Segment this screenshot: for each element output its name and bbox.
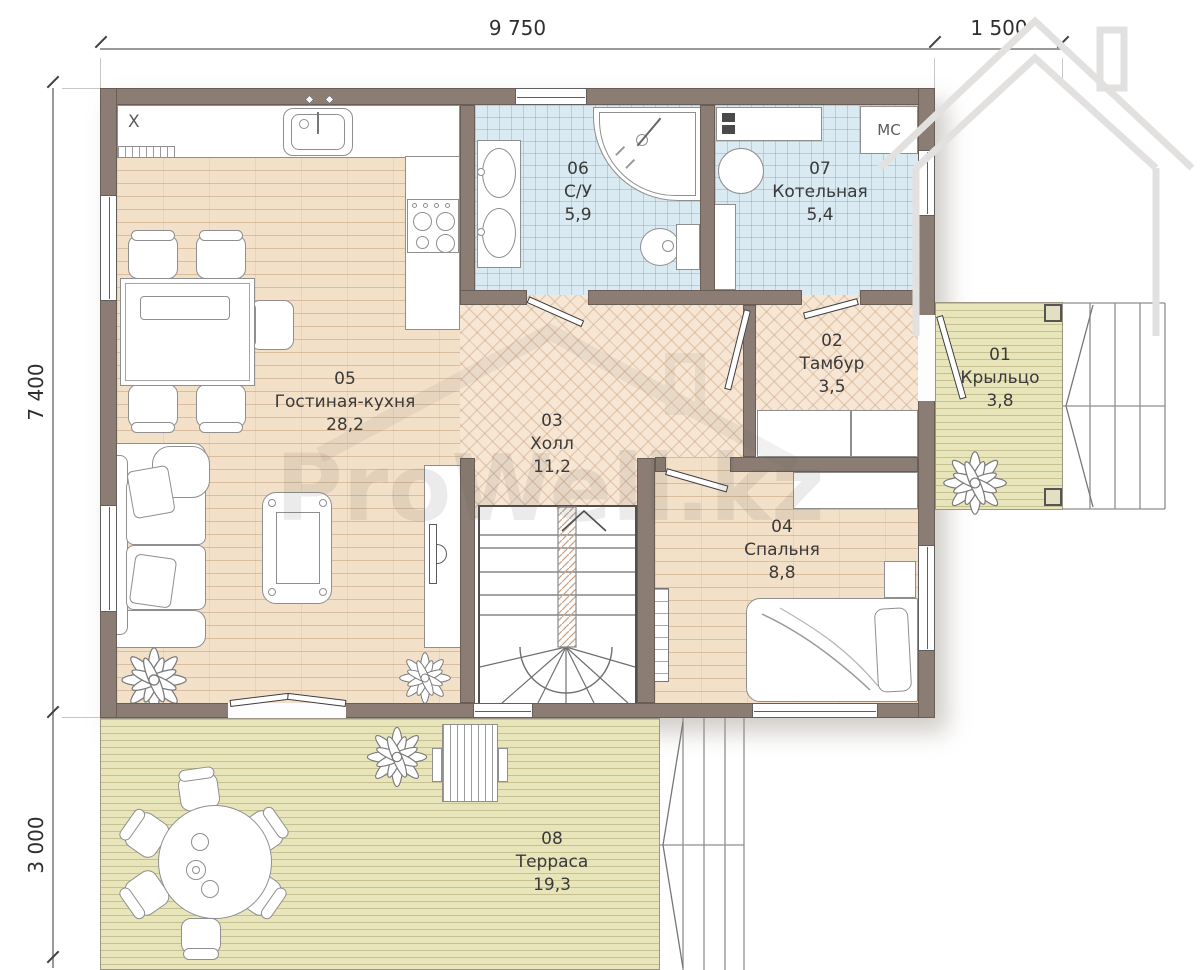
- floor-plan-canvas: X: [0, 0, 1200, 970]
- dim-line: [935, 48, 1063, 50]
- terrace-bench: [442, 724, 498, 802]
- room-label-05: 05 Гостиная-кухня 28,2: [275, 368, 416, 437]
- wall-hall-top: [588, 290, 802, 305]
- room-label-04: 04 Спальня 8,8: [744, 516, 820, 585]
- dishwasher-front: [117, 146, 175, 158]
- coffee-table-leg: [319, 499, 327, 507]
- terrace-table: [158, 805, 272, 919]
- wardrobe: [793, 472, 918, 509]
- room-name: Холл: [530, 433, 574, 456]
- dining-chair: [128, 384, 178, 428]
- staircase: [478, 505, 637, 705]
- room-label-07: 07 Котельная 5,4: [772, 158, 867, 227]
- wall-bedroom-top: [730, 457, 918, 472]
- room-name: Терраса: [516, 851, 589, 874]
- room-number: 02: [800, 330, 865, 353]
- room-label-03: 03 Холл 11,2: [530, 410, 574, 479]
- room-number: 08: [516, 828, 589, 851]
- table-dish: [192, 866, 200, 874]
- dining-chair: [196, 384, 246, 428]
- front-door-opening: [918, 315, 935, 401]
- sofa-pillow: [129, 553, 178, 608]
- wall-hall-top: [460, 290, 527, 305]
- terrace-stairs: [660, 718, 745, 970]
- stove-knob: [423, 203, 428, 208]
- toilet-tank: [676, 224, 700, 270]
- window-bathroom: [515, 88, 587, 105]
- stove-burner: [416, 236, 429, 249]
- room-label-02: 02 Тамбур 3,5: [800, 330, 865, 399]
- boiler-cabinet: [714, 204, 736, 290]
- room-area: 3,5: [800, 376, 865, 399]
- window-living-upper: [100, 195, 117, 301]
- table-dish: [201, 880, 219, 898]
- boiler-tank: [718, 148, 764, 194]
- room-number: 06: [564, 158, 592, 181]
- window-bedroom-bottom: [752, 703, 878, 718]
- room-number: 04: [744, 516, 820, 539]
- bench-armrest: [432, 748, 442, 782]
- coffee-table-top: [276, 512, 320, 584]
- stove-knob: [412, 203, 417, 208]
- room-area: 8,8: [744, 562, 820, 585]
- dining-chair: [196, 235, 246, 279]
- dim-top-width: 9 750: [100, 16, 935, 40]
- dining-table: [120, 278, 255, 386]
- extension-line: [1062, 58, 1063, 88]
- sofa-pillow: [126, 465, 176, 520]
- extension-line: [100, 58, 101, 88]
- window-living-lower: [100, 505, 117, 612]
- wall-bath-left: [460, 105, 475, 305]
- dim-terrace-depth: 3 000: [24, 816, 48, 873]
- stove-burner: [436, 212, 455, 231]
- bench-armrest: [498, 748, 508, 782]
- wall-stairs-bedroom: [637, 458, 655, 703]
- room-area: 5,4: [772, 204, 867, 227]
- panel-switch: [722, 113, 735, 122]
- coffee-table-leg: [268, 499, 276, 507]
- bath-faucet: [477, 168, 485, 176]
- terrace-chair: [181, 918, 221, 954]
- terrace-door-opening: [228, 703, 346, 718]
- panel-switch: [722, 125, 735, 134]
- faucet-stem: [317, 112, 319, 134]
- dim-tick: [47, 76, 60, 89]
- wall-bath-boiler: [700, 105, 715, 295]
- toilet-bowl: [640, 228, 680, 266]
- room-area: 11,2: [530, 456, 574, 479]
- plant: [938, 446, 1012, 520]
- dining-chair: [128, 235, 178, 279]
- room-area: 28,2: [275, 414, 416, 437]
- table-tray: [140, 296, 230, 320]
- room-label-06: 06 С/У 5,9: [564, 158, 592, 227]
- window-hall-bottom: [473, 703, 533, 718]
- mc-label: МС: [860, 106, 918, 154]
- porch-stairs: [1063, 302, 1168, 510]
- bath-faucet: [477, 228, 485, 236]
- entry-closet: [757, 410, 918, 457]
- coffee-table-leg: [319, 588, 327, 596]
- dim-line: [52, 718, 54, 968]
- dim-line: [52, 88, 54, 718]
- fridge-x-marker: X: [128, 112, 140, 132]
- extension-line: [62, 88, 100, 89]
- bed-pillow: [874, 607, 912, 693]
- table-dish: [191, 833, 209, 851]
- room-name: Котельная: [772, 181, 867, 204]
- room-area: 5,9: [564, 204, 592, 227]
- dim-porch-width: 1 500: [935, 16, 1063, 40]
- room-area: 19,3: [516, 874, 589, 897]
- toilet-drain: [662, 240, 674, 252]
- porch-post: [1044, 488, 1062, 506]
- plant: [395, 648, 455, 708]
- closet-divider: [850, 411, 852, 456]
- wall-bedroom-top: [655, 457, 666, 472]
- extension-line: [934, 58, 935, 88]
- stove-knob: [445, 203, 450, 208]
- room-name: Гостиная-кухня: [275, 391, 416, 414]
- plant: [362, 722, 432, 792]
- bath-sink: [482, 148, 516, 198]
- coffee-table-leg: [268, 588, 276, 596]
- window-boiler: [918, 150, 935, 216]
- room-label-01: 01 Крыльцо 3,8: [960, 344, 1039, 413]
- sink-drain: [299, 119, 309, 129]
- dining-chair: [250, 300, 294, 350]
- window-bedroom-side: [918, 545, 935, 651]
- radiator: [654, 588, 669, 682]
- room-label-08: 08 Терраса 19,3: [516, 828, 589, 897]
- dim-line: [100, 48, 935, 50]
- wall-tambur-top: [860, 290, 918, 305]
- room-name: С/У: [564, 181, 592, 204]
- extension-line: [62, 717, 100, 718]
- dim-left-height: 7 400: [24, 363, 48, 420]
- stove-knob: [434, 203, 439, 208]
- wall-living-hall: [460, 458, 475, 703]
- tv-screen: [429, 524, 437, 584]
- room-floor-hall: [460, 295, 743, 472]
- bath-sink: [482, 208, 516, 258]
- room-number: 03: [530, 410, 574, 433]
- porch-post: [1044, 304, 1062, 322]
- wall-outer-left: [100, 88, 117, 718]
- room-number: 01: [960, 344, 1039, 367]
- stove-burner: [413, 212, 432, 231]
- nightstand: [884, 561, 916, 598]
- room-name: Тамбур: [800, 353, 865, 376]
- stove-burner: [436, 234, 455, 253]
- room-area: 3,8: [960, 390, 1039, 413]
- room-number: 07: [772, 158, 867, 181]
- room-name: Спальня: [744, 539, 820, 562]
- room-number: 05: [275, 368, 416, 391]
- room-name: Крыльцо: [960, 367, 1039, 390]
